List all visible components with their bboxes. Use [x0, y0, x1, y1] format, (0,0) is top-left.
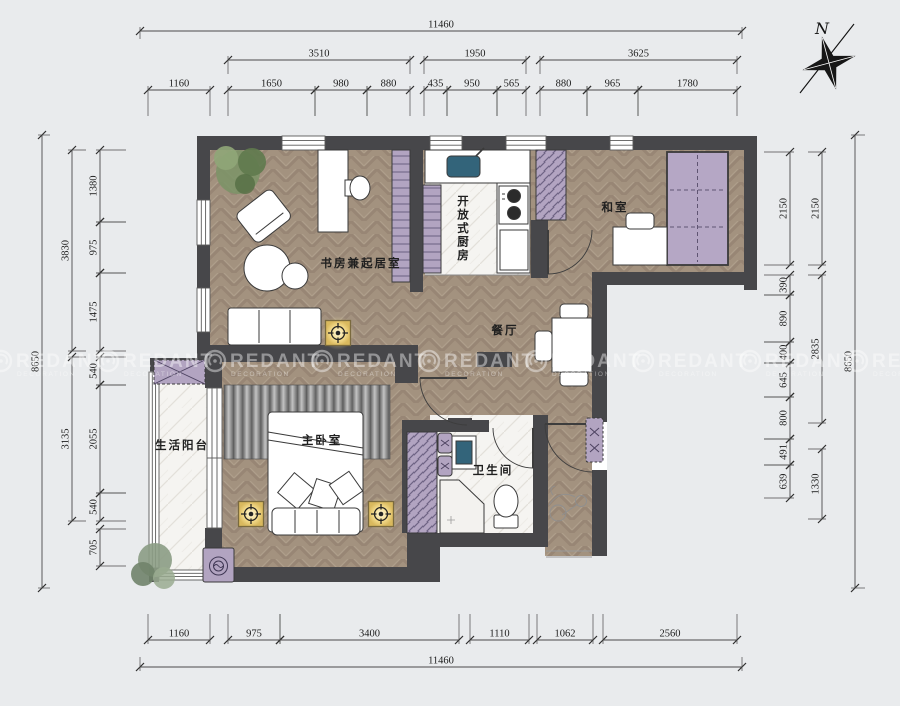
room-label-bathroom: 卫生间	[473, 463, 514, 477]
dimension-label: 3625	[628, 49, 649, 60]
dimension-label: 2150	[779, 198, 790, 219]
dimension-label: 1950	[465, 49, 486, 60]
study-sofa	[228, 308, 321, 345]
dimension-label: 2560	[660, 629, 681, 640]
room-label-study: 书房兼起居室	[321, 256, 402, 270]
dimension-label: 1062	[555, 629, 576, 640]
room-label-master-bedroom: 主卧室	[302, 433, 343, 447]
dimension-label: 880	[381, 79, 397, 90]
dimension-label: 3400	[359, 629, 380, 640]
lamp-bedroom-left	[234, 497, 268, 531]
tatami-mat	[667, 152, 728, 265]
window-left-2	[197, 288, 210, 332]
wall-corridor-stub	[448, 418, 472, 432]
kitchen-fridge	[423, 185, 441, 273]
dimension-label: 11460	[428, 20, 454, 31]
dimension-label: 890	[779, 311, 790, 327]
dimension-label: 1475	[89, 302, 100, 323]
dimension-label: 435	[428, 79, 444, 90]
wall-tatami-right	[744, 136, 757, 290]
wall-tatami-bottom	[592, 272, 757, 285]
dimension-label: 491	[779, 444, 790, 460]
kitchen-cabinet	[500, 230, 528, 270]
north-label: N	[814, 19, 830, 38]
bedroom-wardrobe	[407, 432, 437, 533]
dimension-label: 540	[89, 499, 100, 515]
dimension-label: 1330	[811, 474, 822, 495]
wall-bath-top-mid	[472, 420, 489, 432]
dimension-label: 980	[333, 79, 349, 90]
wall-right-lower	[592, 470, 607, 556]
dimension-label: 390	[779, 277, 790, 293]
window-top-2	[430, 136, 462, 150]
window-top-4	[610, 136, 633, 150]
dimension-label: 800	[779, 410, 790, 426]
dimension-label: 1160	[169, 79, 190, 90]
dimension-label: 975	[89, 240, 100, 256]
balcony-sliding-door	[207, 388, 222, 528]
entry-shoe-bench	[586, 418, 603, 462]
floor-plan-page: REDANT DECORATION	[0, 0, 900, 706]
dimension-label: 3830	[61, 240, 72, 261]
dimension-label: 1780	[677, 79, 698, 90]
kitchen-pantry	[536, 150, 566, 220]
dimension-label: 965	[605, 79, 621, 90]
dimension-label: 880	[556, 79, 572, 90]
dimension-label: 639	[779, 474, 790, 490]
wall-kitchen-stub	[531, 220, 548, 278]
wall-bath-bottom	[440, 533, 545, 547]
wall-bath-top-left	[402, 420, 448, 432]
kitchen-stove	[499, 186, 528, 224]
room-label-dining: 餐厅	[491, 323, 519, 337]
lamp-bedroom-right	[364, 497, 398, 531]
bathroom-toilet	[494, 485, 518, 528]
study-side-table	[282, 263, 308, 289]
bedroom-bed	[268, 412, 363, 535]
dimension-label: 975	[246, 629, 262, 640]
window-left-1	[197, 200, 210, 245]
dimension-label: 3510	[309, 49, 330, 60]
kitchen-sink	[447, 156, 480, 177]
room-label-kitchen: 开放式厨房	[456, 194, 471, 262]
wall-left	[197, 136, 210, 370]
dimension-label: 3135	[61, 429, 72, 450]
dimension-label: 11460	[428, 656, 454, 667]
dimension-label: 2055	[89, 429, 100, 450]
dimension-label: 705	[89, 540, 100, 556]
wall-top	[197, 136, 757, 150]
wall-bedroom-bottom	[207, 567, 440, 582]
dimension-label: 1110	[489, 629, 509, 640]
study-round-table	[244, 245, 290, 291]
window-top-3	[506, 136, 546, 150]
room-label-balcony: 生活阳台	[155, 438, 209, 452]
wall-study-kitchen	[410, 136, 423, 292]
dimension-label: 565	[504, 79, 520, 90]
window-balcony-left	[149, 372, 159, 568]
dimension-label: 950	[464, 79, 480, 90]
washing-machine	[203, 548, 234, 582]
window-top-1	[282, 136, 325, 150]
dimension-label: 1160	[169, 629, 190, 640]
room-label-tatami: 和室	[602, 200, 629, 214]
dimension-label: 1650	[261, 79, 282, 90]
dimension-label: 2150	[811, 198, 822, 219]
lamp-study	[321, 316, 355, 350]
dimension-label: 1380	[89, 176, 100, 197]
